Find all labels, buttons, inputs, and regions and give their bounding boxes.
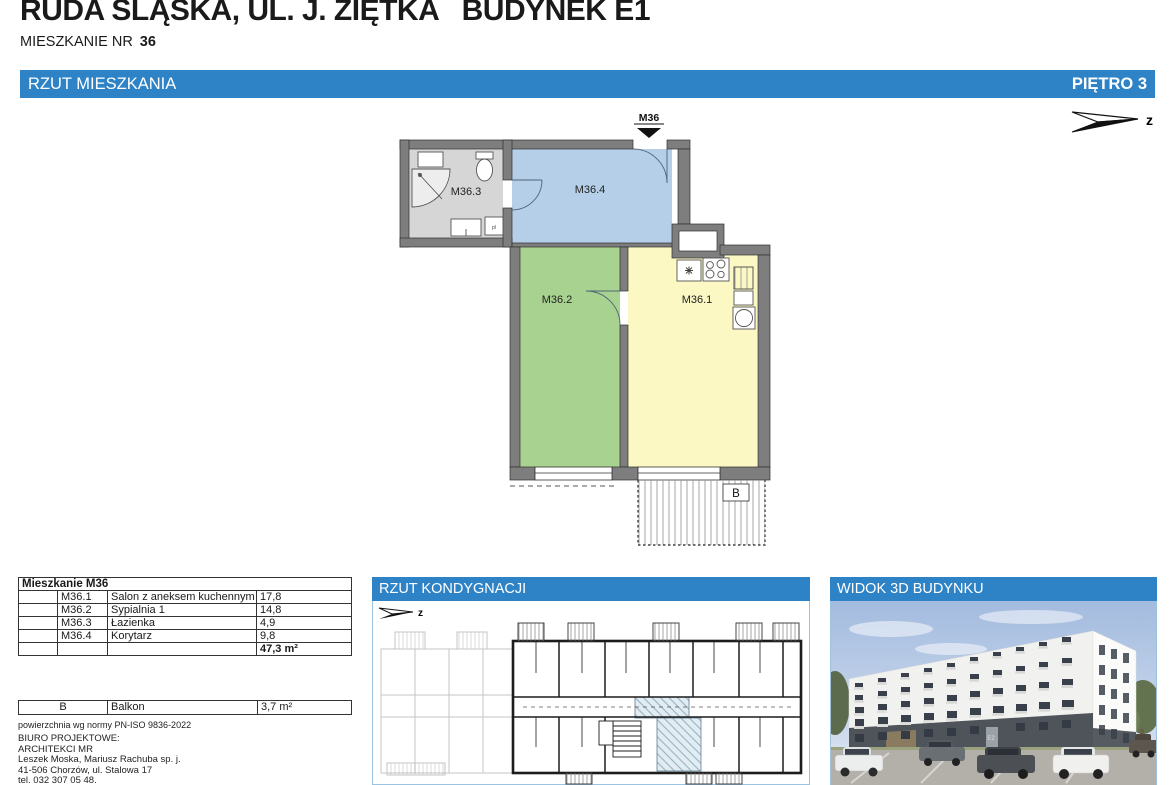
table-row: M36.1Salon z aneksem kuchennym17,8 (19, 591, 352, 604)
building-sign: E2 (987, 736, 995, 742)
table-row: M36.3Łazienka4,9 (19, 617, 352, 630)
installation-shaft (679, 231, 717, 251)
kitchen-sink-icon (733, 307, 755, 329)
faded-building-section (381, 632, 513, 775)
room-label-corridor: M36.4 (575, 184, 606, 196)
svg-text:pl: pl (492, 225, 496, 231)
room-bedroom (520, 247, 620, 467)
area-table-title: Mieszkanie M36 (19, 578, 352, 591)
floor-layout-drawing: z (373, 601, 809, 785)
design-office-block: BIURO PROJEKTOWE: ARCHITEKCI MR Leszek M… (18, 734, 181, 785)
dark-building-section (513, 623, 801, 784)
entrance-label: M36 (639, 112, 660, 124)
north-arrow-label: z (1146, 112, 1153, 128)
room-label-bathroom: M36.3 (451, 186, 482, 198)
stove-icon (703, 258, 729, 281)
north-arrow: z (1066, 104, 1158, 138)
entrance-marker: M36 (634, 112, 664, 138)
section-header-bar: RZUT MIESZKANIA PIĘTRO 3 (20, 70, 1155, 98)
panel-north-arrow-label: z (418, 608, 423, 619)
apartment-card-page: RUDA ŚLĄSKA, UL. J. ZIĘTKA BUDYNEK E1 MI… (0, 0, 1170, 785)
apartment-floor-plan: pl B M36 (390, 105, 780, 555)
balcony-label: B (732, 488, 740, 500)
apartment-label: MIESZKANIE NR (20, 34, 133, 50)
table-total-row: 47,3 m² (19, 643, 352, 656)
room-label-living: M36.1 (682, 294, 713, 306)
apartment-subtitle: MIESZKANIE NR36 (20, 34, 156, 50)
entrance-arrow-icon (637, 128, 661, 138)
panel-north-arrow: z (379, 608, 423, 619)
office-line: BIURO PROJEKTOWE: (18, 734, 181, 745)
area-table: Mieszkanie M36 M36.1Salon z aneksem kuch… (18, 577, 352, 656)
room-corridor (512, 149, 672, 243)
balcony-table: B Balkon 3,7 m² (18, 700, 352, 715)
table-row: M36.4Korytarz9,8 (19, 630, 352, 643)
norm-note: powierzchnia wg normy PN-ISO 9836-2022 (18, 720, 191, 730)
office-line: Leszek Moska, Mariusz Rachuba sp. j. (18, 755, 181, 766)
floor-layout-panel-header: RZUT KONDYGNACJI (372, 577, 810, 601)
counter-icon (734, 291, 753, 305)
building-3d-render: E2 (831, 601, 1156, 785)
total-area: 47,3 m² (257, 643, 352, 656)
floor-badge: PIĘTRO 3 (1072, 75, 1155, 94)
balcony: B (638, 480, 765, 545)
apartment-number: 36 (140, 34, 156, 50)
table-row: B Balkon 3,7 m² (19, 701, 352, 715)
office-line: tel. 032 307 05 48. (18, 776, 181, 785)
view3d-panel-header: WIDOK 3D BUDYNKU (830, 577, 1157, 601)
table-row: M36.2Sypialnia 114,8 (19, 604, 352, 617)
room-label-bedroom: M36.2 (542, 294, 573, 306)
toilet-icon (476, 152, 493, 159)
page-title: RUDA ŚLĄSKA, UL. J. ZIĘTKA BUDYNEK E1 (20, 0, 650, 28)
floor-layout-panel: RZUT KONDYGNACJI z (372, 577, 810, 785)
drainer-icon (734, 267, 753, 289)
view3d-panel: WIDOK 3D BUDYNKU (830, 577, 1157, 785)
section-title: RZUT MIESZKANIA (20, 75, 176, 94)
